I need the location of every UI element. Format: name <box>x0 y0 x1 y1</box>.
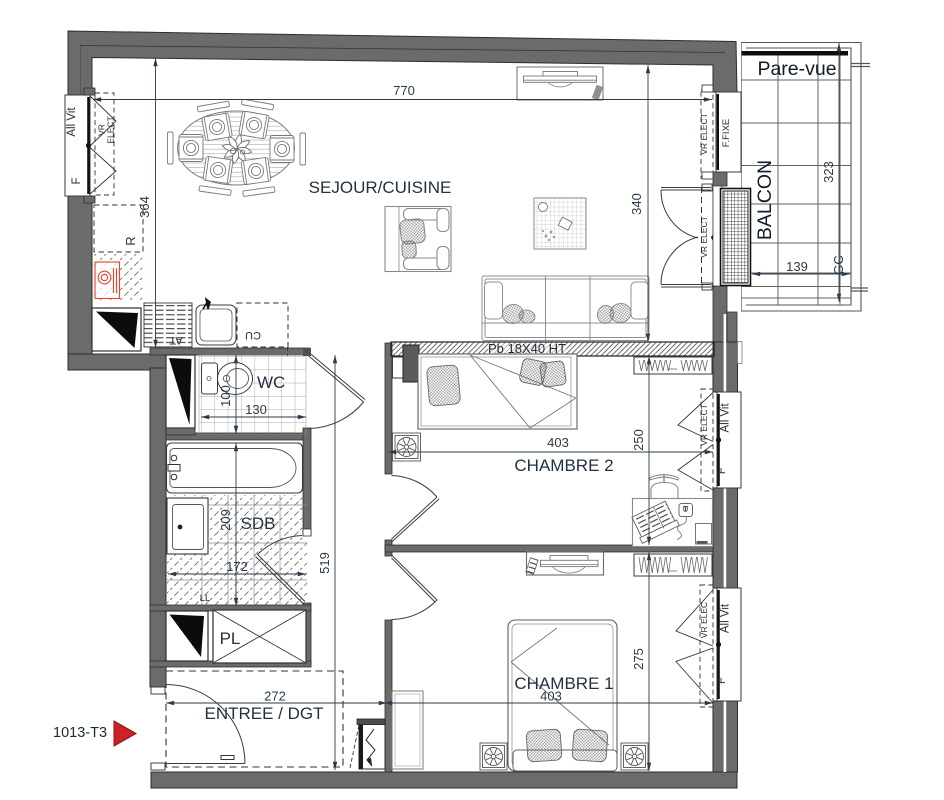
svg-text:130: 130 <box>245 402 267 417</box>
svg-text:All Vit: All Vit <box>720 403 732 433</box>
svg-text:VR ELECT: VR ELECT <box>699 113 709 155</box>
svg-text:PL: PL <box>220 629 241 648</box>
svg-text:F: F <box>716 677 728 684</box>
svg-text:250: 250 <box>631 429 646 451</box>
svg-text:770: 770 <box>393 83 415 98</box>
svg-text:209: 209 <box>218 509 233 531</box>
svg-text:SEJOUR/CUISINE: SEJOUR/CUISINE <box>309 178 452 197</box>
svg-text:R: R <box>123 236 138 245</box>
svg-text:BALCON: BALCON <box>754 160 776 240</box>
svg-text:VR ELECT: VR ELECT <box>699 216 709 258</box>
svg-text:AT: AT <box>169 334 183 346</box>
svg-text:Pare-vue: Pare-vue <box>757 58 836 80</box>
svg-text:VR ELEC: VR ELEC <box>699 602 709 638</box>
svg-text:F: F <box>716 467 728 474</box>
svg-text:139: 139 <box>786 259 808 274</box>
svg-text:172: 172 <box>226 559 248 574</box>
svg-text:100: 100 <box>218 385 233 407</box>
svg-text:WC: WC <box>257 373 285 392</box>
svg-text:403: 403 <box>547 435 569 450</box>
svg-text:GC: GC <box>831 255 846 275</box>
svg-text:CHAMBRE 1: CHAMBRE 1 <box>514 674 613 693</box>
svg-text:F.FIXE: F.FIXE <box>721 119 732 148</box>
svg-text:275: 275 <box>631 648 646 670</box>
svg-text:CU: CU <box>245 329 261 341</box>
svg-text:519: 519 <box>317 552 332 574</box>
svg-text:F: F <box>71 177 83 184</box>
svg-text:All Vit: All Vit <box>66 107 78 137</box>
svg-text:All Vit: All Vit <box>720 603 732 633</box>
svg-text:ENTREE / DGT: ENTREE / DGT <box>204 704 323 723</box>
svg-text:SDB: SDB <box>241 514 276 533</box>
svg-text:CHAMBRE 2: CHAMBRE 2 <box>514 456 613 475</box>
svg-text:VR ELECT: VR ELECT <box>699 404 709 446</box>
svg-text:272: 272 <box>264 689 286 704</box>
svg-text:364: 364 <box>137 196 152 218</box>
svg-text:LL: LL <box>200 593 211 604</box>
svg-text:323: 323 <box>821 161 836 183</box>
svg-text:1013-T3: 1013-T3 <box>53 725 107 741</box>
svg-text:340: 340 <box>629 193 644 215</box>
